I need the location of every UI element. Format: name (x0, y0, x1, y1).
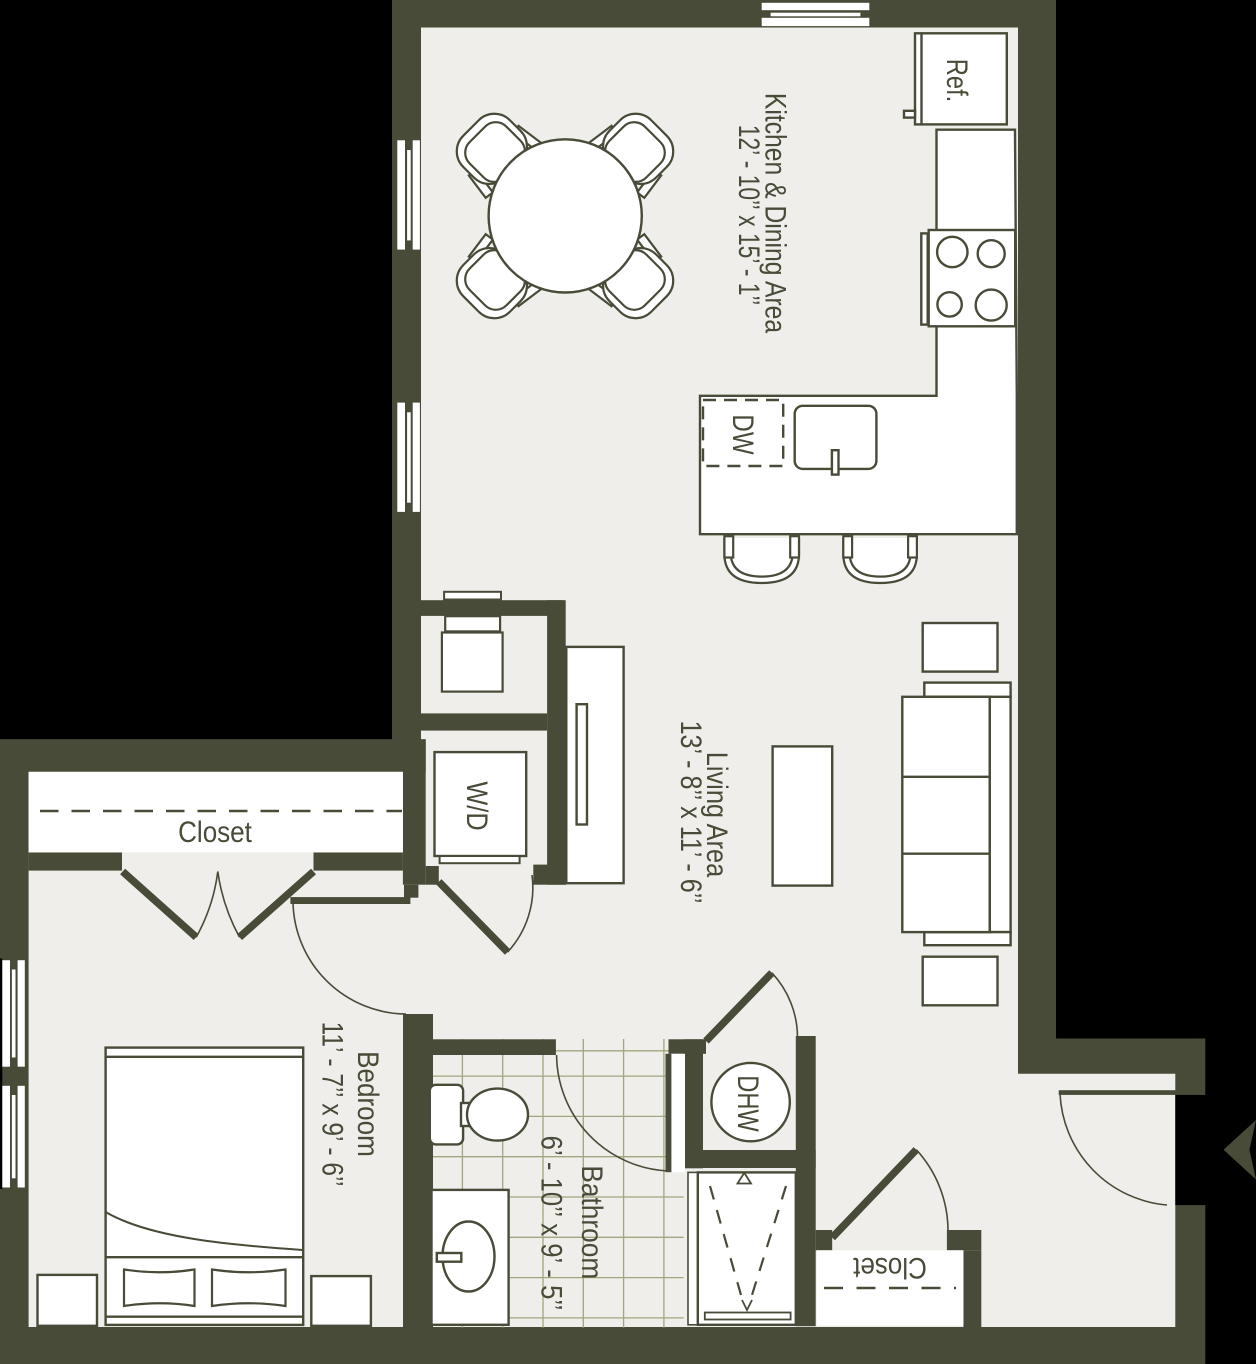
svg-text:Closet: Closet (178, 816, 252, 849)
svg-text:W/D: W/D (460, 781, 493, 830)
svg-text:6’ - 10’’ x 9’ - 5’’: 6’ - 10’’ x 9’ - 5’’ (535, 1136, 568, 1311)
svg-text:DW: DW (726, 414, 759, 455)
svg-text:DHW: DHW (732, 1075, 765, 1132)
svg-text:Bathroom: Bathroom (575, 1165, 608, 1279)
svg-text:Ref.: Ref. (940, 59, 973, 102)
svg-text:11’ - 7’’ x 9’ - 6’’: 11’ - 7’’ x 9’ - 6’’ (316, 1022, 349, 1187)
svg-text:12’ - 10’’ x 15’ - 1’’: 12’ - 10’’ x 15’ - 1’’ (732, 125, 765, 305)
svg-text:Bedroom: Bedroom (351, 1051, 384, 1157)
svg-text:Closet: Closet (853, 1251, 927, 1284)
svg-text:13’ - 8’’ x 11’ - 6’’: 13’ - 8’’ x 11’ - 6’’ (674, 721, 707, 904)
